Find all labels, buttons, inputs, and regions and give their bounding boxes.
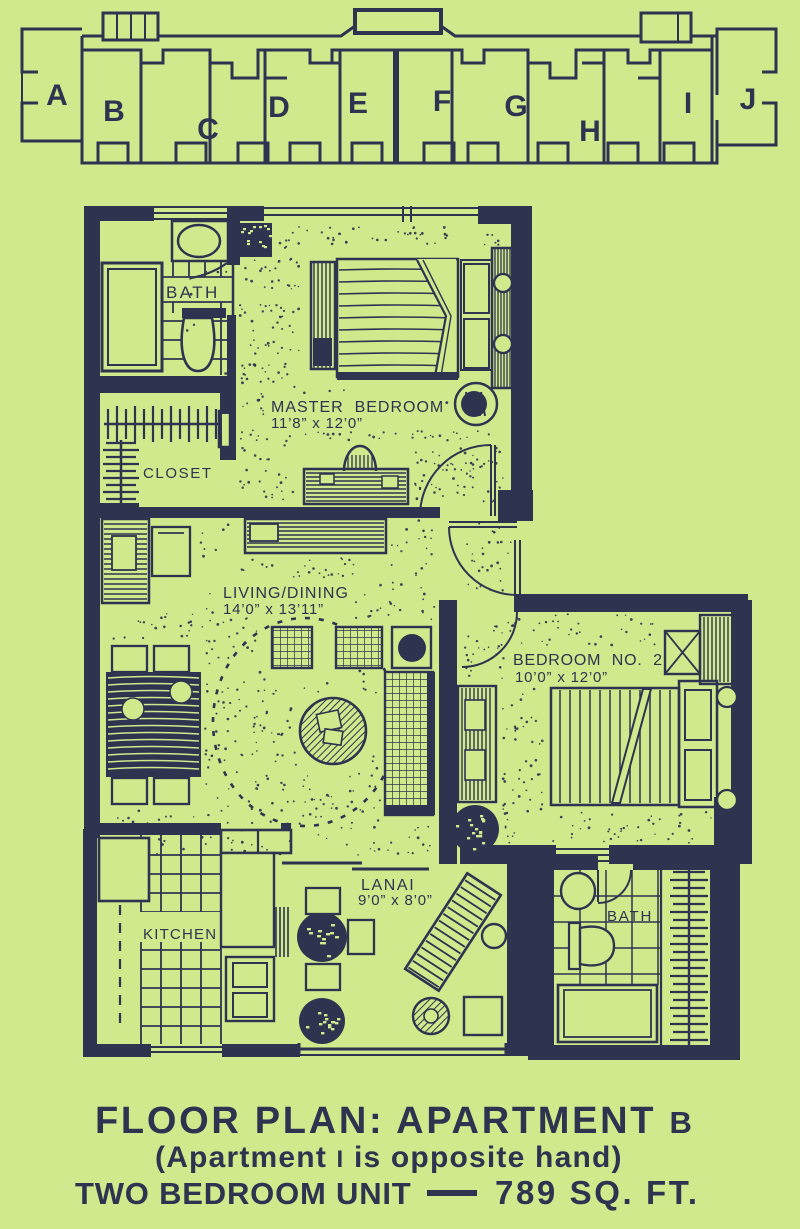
svg-text:BEDROOM NO. 2: BEDROOM NO. 2	[513, 652, 663, 669]
svg-text:B: B	[103, 95, 125, 128]
svg-text:11’8” x 12’0”: 11’8” x 12’0”	[271, 415, 363, 432]
svg-text:BATH: BATH	[166, 283, 220, 302]
svg-text:A: A	[46, 79, 68, 112]
svg-text:14’0” x 13’11”: 14’0” x 13’11”	[223, 601, 324, 618]
svg-text:MASTER BEDROOM: MASTER BEDROOM	[271, 399, 444, 416]
svg-text:(Apartment I is opposite hand): (Apartment I is opposite hand)	[155, 1141, 623, 1174]
svg-text:789 SQ. FT.: 789 SQ. FT.	[495, 1174, 700, 1211]
svg-text:F: F	[433, 85, 451, 118]
svg-text:C: C	[197, 113, 219, 146]
svg-text:LIVING/DINING: LIVING/DINING	[223, 585, 349, 602]
svg-text:E: E	[348, 87, 368, 120]
svg-text:9’0” x 8’0”: 9’0” x 8’0”	[358, 892, 433, 909]
svg-text:H: H	[579, 115, 601, 148]
svg-text:D: D	[268, 91, 290, 124]
svg-text:I: I	[684, 87, 692, 120]
svg-text:CLOSET: CLOSET	[143, 465, 213, 482]
svg-text:G: G	[504, 90, 527, 123]
svg-text:KITCHEN: KITCHEN	[143, 926, 217, 943]
svg-text:TWO BEDROOM UNIT: TWO BEDROOM UNIT	[75, 1176, 412, 1211]
svg-text:J: J	[740, 83, 757, 116]
svg-text:FLOOR PLAN: APARTMENT B: FLOOR PLAN: APARTMENT B	[95, 1100, 695, 1142]
svg-text:BATH: BATH	[607, 908, 653, 925]
svg-text:10’0” x 12’0”: 10’0” x 12’0”	[515, 669, 608, 686]
